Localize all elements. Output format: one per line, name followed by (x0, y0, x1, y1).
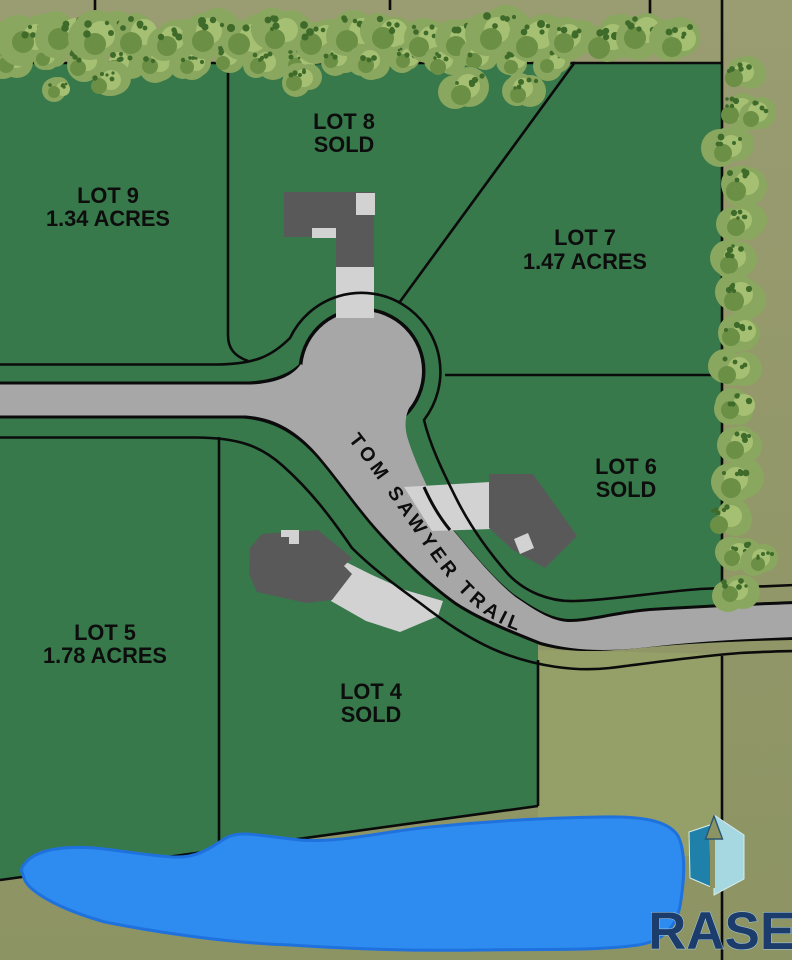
svg-text:RASE: RASE (648, 902, 792, 960)
svg-text:LOT 7: LOT 7 (554, 225, 616, 250)
svg-text:SOLD: SOLD (341, 702, 402, 727)
svg-text:LOT 4: LOT 4 (340, 679, 402, 704)
svg-text:LOT 6: LOT 6 (595, 454, 657, 479)
svg-text:SOLD: SOLD (314, 132, 375, 157)
svg-text:1.78 ACRES: 1.78 ACRES (43, 643, 167, 668)
svg-text:1.47 ACRES: 1.47 ACRES (523, 249, 647, 274)
svg-text:SOLD: SOLD (596, 477, 657, 502)
svg-text:LOT 9: LOT 9 (77, 183, 139, 208)
svg-text:LOT 5: LOT 5 (74, 620, 136, 645)
svg-text:1.34 ACRES: 1.34 ACRES (46, 206, 170, 231)
svg-text:LOT 8: LOT 8 (313, 109, 375, 134)
